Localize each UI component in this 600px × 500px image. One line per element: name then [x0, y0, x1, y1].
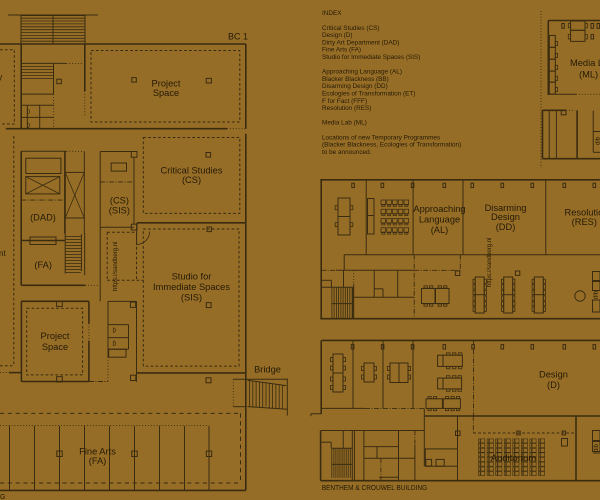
svg-text:Design: Design: [539, 370, 568, 380]
svg-text:(FA): (FA): [34, 260, 52, 270]
svg-text:Project: Project: [41, 331, 70, 341]
svg-text:Studio for Immediate Spaces (S: Studio for Immediate Spaces (SIS): [322, 54, 420, 61]
svg-text:Bridge: Bridge: [254, 364, 281, 374]
svg-text:(D): (D): [547, 380, 560, 390]
svg-text:INDEX: INDEX: [322, 10, 342, 17]
svg-text:Dirty Art Department (DAD): Dirty Art Department (DAD): [322, 39, 399, 46]
svg-text:to be announced.: to be announced.: [322, 149, 372, 156]
svg-text:Fine Arts: Fine Arts: [79, 447, 116, 457]
svg-text:(AL): (AL): [431, 225, 449, 235]
svg-text:(FA): (FA): [89, 456, 107, 466]
svg-text:(DAD): (DAD): [30, 213, 56, 223]
svg-text:Project: Project: [152, 78, 181, 88]
svg-text:Critical Studies: Critical Studies: [160, 165, 222, 175]
svg-text:Locations of new Temporary Pro: Locations of new Temporary Programmes: [322, 134, 440, 141]
svg-text:Space: Space: [153, 88, 179, 98]
svg-text:F for Fact (FFF): F for Fact (FFF): [322, 98, 367, 105]
svg-text:Studio for: Studio for: [172, 272, 212, 282]
svg-text:Disarming Design (DD): Disarming Design (DD): [322, 83, 388, 90]
svg-text:dib: dib: [594, 443, 600, 452]
svg-text:Auditorium: Auditorium: [491, 453, 536, 464]
svg-text:Design: Design: [491, 212, 520, 222]
svg-text:BENTHEM & CROUWEL BUILDING: BENTHEM & CROUWEL BUILDING: [322, 483, 428, 492]
svg-text:(ML): (ML): [579, 70, 598, 80]
svg-text:Resolution (RES): Resolution (RES): [322, 105, 371, 112]
svg-text:Design (D): Design (D): [322, 32, 353, 39]
svg-text:Approaching: Approaching: [413, 204, 465, 214]
svg-text:Immediate Spaces: Immediate Spaces: [153, 282, 230, 292]
svg-text:G: G: [0, 494, 5, 500]
svg-text:(Blacker Blackness, Ecologies: (Blacker Blackness, Ecologies of Transfo…: [322, 142, 461, 149]
svg-text:(DD): (DD): [496, 222, 516, 232]
svg-text:Fine Arts (FA): Fine Arts (FA): [322, 47, 361, 54]
svg-text:https://sandberg.nl: https://sandberg.nl: [487, 238, 493, 287]
svg-text:BC 1: BC 1: [228, 32, 248, 42]
svg-text:Blacker Blackness (BB): Blacker Blackness (BB): [322, 76, 389, 83]
svg-text:Ecologies of Transformation (E: Ecologies of Transformation (ET): [322, 91, 415, 98]
svg-text:Media Lab: Media Lab: [570, 58, 600, 68]
svg-text:nt: nt: [0, 249, 6, 258]
svg-text:Approaching Language (AL): Approaching Language (AL): [322, 69, 402, 76]
svg-text:dib: dib: [596, 136, 600, 145]
svg-text:(SIS): (SIS): [181, 293, 202, 303]
svg-text:V: V: [0, 74, 3, 83]
svg-text:(CS): (CS): [182, 175, 201, 185]
svg-text:Critical Studies (CS): Critical Studies (CS): [322, 25, 380, 32]
svg-text:(SIS): (SIS): [109, 206, 130, 216]
svg-text:dib: dib: [594, 290, 600, 299]
svg-text:https://sandberg.nl: https://sandberg.nl: [113, 242, 119, 291]
svg-text:(RES): (RES): [572, 217, 597, 227]
svg-text:Language: Language: [419, 214, 460, 224]
svg-text:(CS): (CS): [110, 196, 129, 206]
svg-text:Space: Space: [42, 342, 68, 352]
svg-text:Media Lab (ML): Media Lab (ML): [322, 120, 367, 127]
